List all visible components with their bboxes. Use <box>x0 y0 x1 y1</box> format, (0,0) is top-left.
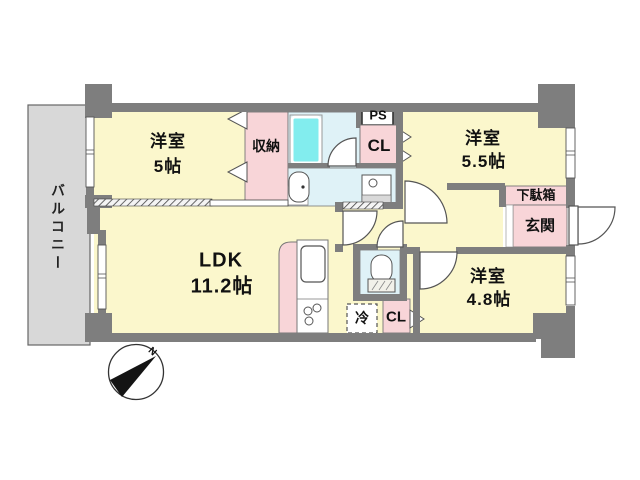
floor-plan: バルコニー 洋室 5帖 収納 PS CL 洋室 5.5帖 下駄箱 玄関 LDK … <box>0 0 640 480</box>
bedroom5-size: 5帖 <box>154 157 182 177</box>
window-bedroom48 <box>566 256 575 305</box>
entrance-door-swing <box>578 207 615 244</box>
window-bedroom55 <box>566 128 575 178</box>
refrigerator-label: 冷 <box>355 310 369 326</box>
upper-closet-label: CL <box>368 136 391 156</box>
entrance-label: 玄関 <box>525 217 555 234</box>
bedroom55-name: 洋室 <box>465 129 501 149</box>
toilet-tank <box>368 279 395 292</box>
window-ldk <box>98 245 106 309</box>
washroom <box>288 168 396 206</box>
ldk-name: LDK <box>199 250 243 273</box>
window-bedroom5 <box>86 117 94 187</box>
kitchen <box>279 240 328 333</box>
ldk-size: 11.2帖 <box>191 276 254 299</box>
balcony-label: バルコニー <box>50 183 66 273</box>
bedroom5-name: 洋室 <box>150 132 186 152</box>
toilet-bowl <box>371 255 392 282</box>
entrance-door-leaf <box>569 206 578 245</box>
pipe-space-label: PS <box>369 109 386 124</box>
floor-plan-drawing <box>0 0 640 480</box>
shoe-cabinet-label: 下駄箱 <box>516 189 555 204</box>
bedroom48-name: 洋室 <box>470 267 506 287</box>
storage-label: 収納 <box>252 138 280 154</box>
kitchen-sink <box>301 246 325 282</box>
entrance-step <box>506 205 513 247</box>
bedroom48-size: 4.8帖 <box>467 290 512 310</box>
washbasin <box>289 172 309 202</box>
lower-closet-label: CL <box>386 308 406 325</box>
bedroom55-size: 5.5帖 <box>462 152 507 172</box>
toilet-room <box>360 250 400 295</box>
